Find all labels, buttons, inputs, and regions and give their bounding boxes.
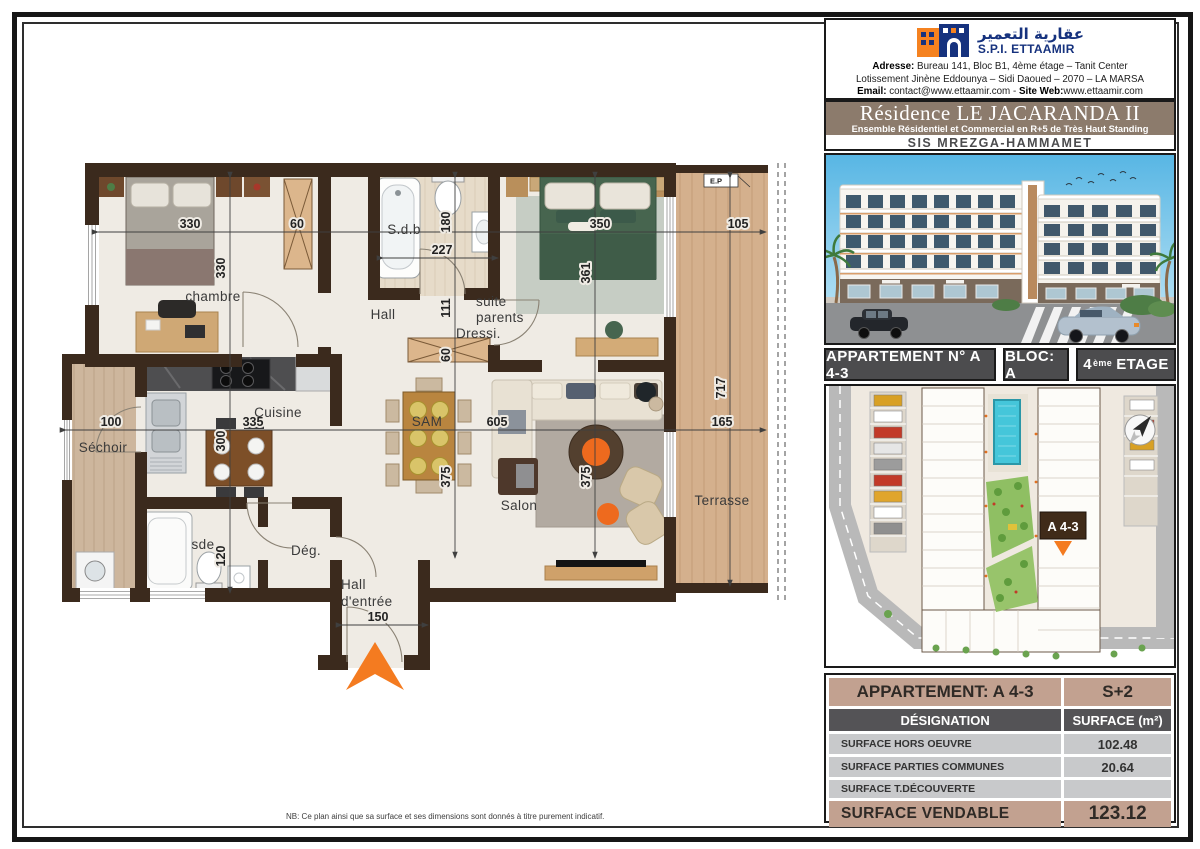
apartment-strip: APPARTEMENT N° A 4-3 BLOC: A 4èmeETAGE bbox=[824, 348, 1176, 381]
dim-entry-w: 150 bbox=[368, 610, 389, 624]
building-right-wing bbox=[1038, 195, 1160, 303]
project-location: SIS MREZGA-HAMMAMET bbox=[826, 135, 1174, 152]
dim-terrace-w: 165 bbox=[712, 415, 733, 429]
dim-closet-w: 60 bbox=[290, 217, 304, 231]
row-value bbox=[1064, 780, 1171, 798]
site-label: Site Web: bbox=[1019, 86, 1063, 97]
room-label-sam: SAM bbox=[412, 414, 442, 429]
dim-terrace-top-w: 105 bbox=[728, 217, 749, 231]
row-value: 20.64 bbox=[1064, 757, 1171, 777]
room-label-entree-2: d'entrée bbox=[341, 594, 393, 609]
ep-label: E.P bbox=[710, 177, 722, 186]
col-designation: DÉSIGNATION bbox=[829, 709, 1061, 731]
room-label-dressing: Dressi. bbox=[456, 326, 501, 341]
dim-sde-h: 120 bbox=[214, 546, 228, 567]
company-name: S.P.I. ETTAAMIR bbox=[978, 43, 1084, 56]
dim-suite-w: 350 bbox=[590, 217, 611, 231]
project-subtitle: Ensemble Résidentiel et Commercial en R+… bbox=[826, 124, 1174, 134]
table-type-badge: S+2 bbox=[1064, 678, 1171, 706]
building-render-image bbox=[826, 155, 1174, 343]
room-label-cuisine: Cuisine bbox=[254, 405, 302, 420]
room-label-suite-2: parents bbox=[476, 310, 524, 325]
floor-number: 4 bbox=[1083, 356, 1092, 373]
apartment-number-badge: APPARTEMENT N° A 4-3 bbox=[824, 348, 996, 381]
dim-sam-h: 375 bbox=[439, 467, 453, 488]
address-label: Adresse: bbox=[872, 61, 914, 72]
company-name-arabic: عقارية التعمير bbox=[978, 26, 1084, 43]
disclaimer-note: NB: Ce plan ainsi que sa surface et ses … bbox=[286, 812, 604, 821]
dim-salon-h: 375 bbox=[579, 467, 593, 488]
table-total-row: SURFACE VENDABLE 123.12 bbox=[829, 801, 1171, 827]
dim-terrace-h: 717 bbox=[714, 378, 728, 399]
company-header: عقارية التعمير S.P.I. ETTAAMIR Adresse: … bbox=[824, 18, 1176, 100]
address-value: Bureau 141, Bloc B1, 4ème étage – Tanit … bbox=[914, 61, 1127, 72]
row-value: 102.48 bbox=[1064, 734, 1171, 754]
table-row: SURFACE PARTIES COMMUNES 20.64 bbox=[829, 757, 1171, 777]
email-value: contact@www.ettaamir.com - bbox=[886, 86, 1018, 97]
floor-badge: 4èmeETAGE bbox=[1076, 348, 1176, 381]
room-label-suite-1: suite bbox=[476, 294, 507, 309]
total-value: 123.12 bbox=[1064, 801, 1171, 827]
building-render bbox=[824, 153, 1176, 345]
room-label-sde: sde bbox=[192, 537, 215, 552]
table-header-row: DÉSIGNATION SURFACE (m²) bbox=[829, 709, 1171, 731]
parking-left bbox=[870, 392, 906, 552]
dim-living-w: 605 bbox=[487, 415, 508, 429]
floor-word: ETAGE bbox=[1116, 356, 1169, 373]
building-left-wing bbox=[840, 185, 1024, 303]
project-title: Résidence LE JACARANDA II bbox=[826, 102, 1174, 124]
site-plan-image: A 4-3 bbox=[826, 386, 1174, 666]
room-label-salon: Salon bbox=[501, 498, 538, 513]
table-title-row: APPARTEMENT: A 4-3 S+2 bbox=[829, 678, 1171, 706]
room-label-sdb: S.d.b bbox=[387, 222, 421, 237]
row-label: SURFACE PARTIES COMMUNES bbox=[829, 757, 1061, 777]
email-label: Email: bbox=[857, 86, 886, 97]
plan-sheet: E.P 330 60 350 105 227 100 335 605 165 1… bbox=[0, 0, 1200, 849]
dim-chambre-w: 330 bbox=[180, 217, 201, 231]
company-logo-icon bbox=[916, 23, 970, 59]
room-label-chambre: chambre bbox=[185, 289, 240, 304]
dim-sechoir-w: 100 bbox=[101, 415, 122, 429]
table-apartment-title: APPARTEMENT: A 4-3 bbox=[829, 678, 1061, 706]
room-label-terrasse: Terrasse bbox=[695, 493, 750, 508]
col-surface: SURFACE (m²) bbox=[1064, 709, 1171, 731]
site-value: www.ettaamir.com bbox=[1063, 86, 1143, 97]
dim-suite-h: 361 bbox=[579, 263, 593, 284]
room-label-deg: Dég. bbox=[291, 543, 321, 558]
row-label: SURFACE T.DÉCOUVERTE bbox=[829, 780, 1061, 798]
table-row: SURFACE T.DÉCOUVERTE bbox=[829, 780, 1171, 798]
address-line-1: Adresse: Bureau 141, Bloc B1, 4ème étage… bbox=[826, 61, 1174, 74]
lot-boundary bbox=[778, 163, 785, 600]
room-label-hall: Hall bbox=[371, 307, 396, 322]
dim-chambre-h: 330 bbox=[214, 258, 228, 279]
unit-marker-label: A 4-3 bbox=[1047, 519, 1078, 534]
room-label-entree-1: Hall bbox=[341, 577, 366, 592]
dim-dressing-d: 60 bbox=[439, 348, 453, 362]
row-label: SURFACE HORS OEUVRE bbox=[829, 734, 1061, 754]
site-plan: A 4-3 bbox=[824, 384, 1176, 668]
dim-sdb-w: 227 bbox=[432, 243, 453, 257]
floor-suffix: ème bbox=[1093, 358, 1112, 368]
total-label: SURFACE VENDABLE bbox=[829, 801, 1061, 827]
floor-plan: E.P 330 60 350 105 227 100 335 605 165 1… bbox=[55, 150, 800, 700]
address-line-2: Lotissement Jinène Eddounya – Sidi Daoue… bbox=[826, 74, 1174, 87]
dim-hall-h: 111 bbox=[439, 298, 453, 318]
contact-line: Email: contact@www.ettaamir.com - Site W… bbox=[826, 86, 1174, 99]
project-title-box: Résidence LE JACARANDA II Ensemble Résid… bbox=[824, 100, 1176, 151]
bloc-badge: BLOC: A bbox=[1003, 348, 1069, 381]
surface-table: APPARTEMENT: A 4-3 S+2 DÉSIGNATION SURFA… bbox=[824, 673, 1176, 823]
dim-sdb-h: 180 bbox=[439, 212, 453, 233]
dim-cuisine-h: 300 bbox=[214, 431, 228, 452]
table-row: SURFACE HORS OEUVRE 102.48 bbox=[829, 734, 1171, 754]
room-label-sechoir: Séchoir bbox=[79, 440, 128, 455]
